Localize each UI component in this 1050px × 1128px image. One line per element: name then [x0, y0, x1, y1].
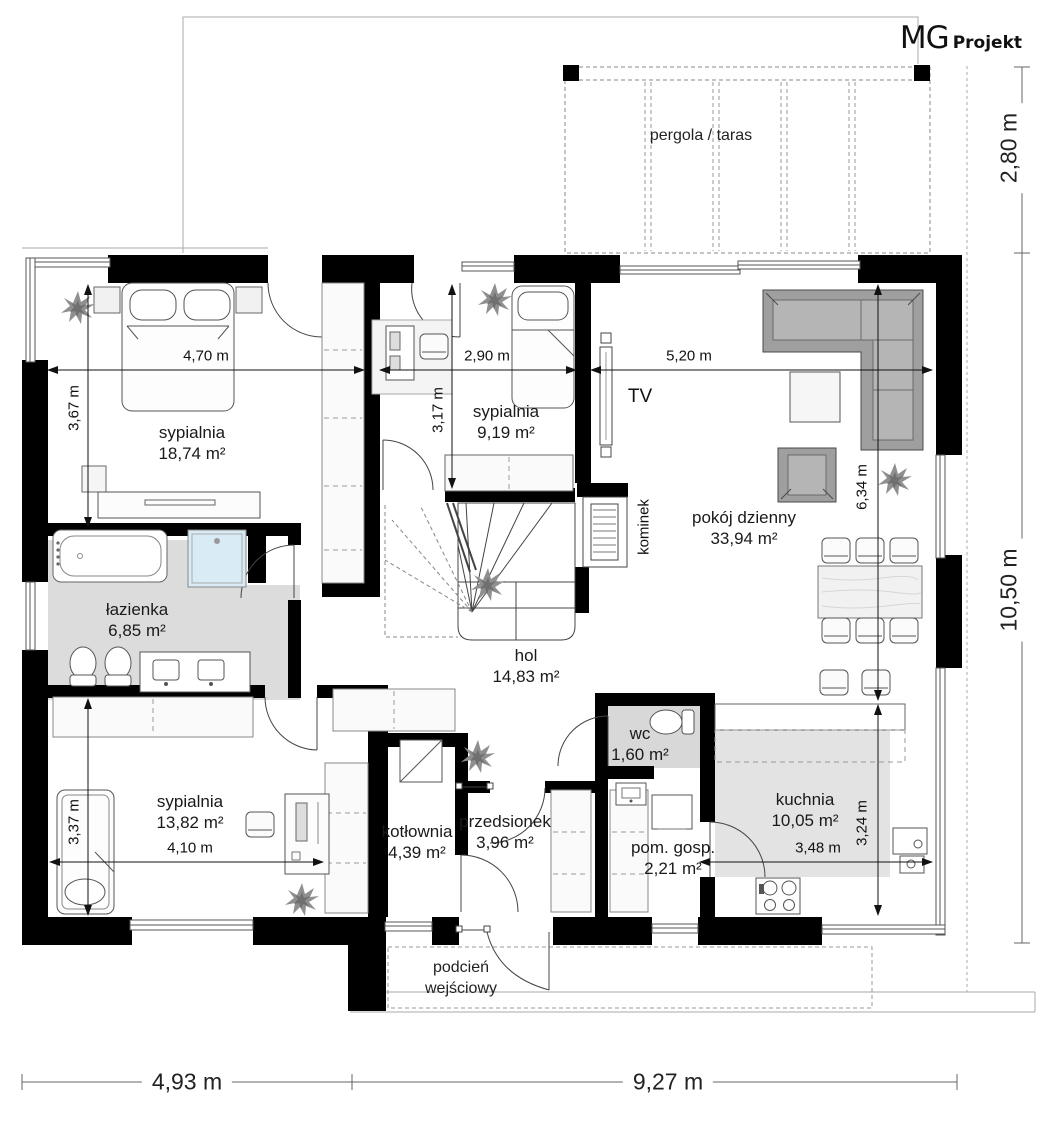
boiler-room-furniture [400, 740, 442, 782]
logo-projekt: Projekt [953, 33, 1022, 53]
room-label-hall: hol 14,83 m² [492, 645, 559, 688]
pergola-post [563, 65, 579, 81]
room-label-bedroom2: sypialnia 9,19 m² [473, 401, 539, 444]
bedroom2-furniture [372, 283, 574, 491]
room-label-bathroom: łazienka 6,85 m² [106, 599, 168, 642]
room-label-bedroom1: sypialnia 18,74 m² [158, 422, 225, 465]
dim-living-width: 5,20 m [666, 348, 712, 365]
dim-pergola-depth: 2,80 m [996, 103, 1023, 193]
dim-house-width-right: 9,27 m [623, 1069, 713, 1096]
dim-living-height: 6,34 m [854, 464, 871, 510]
dim-kitchen-width: 3,48 m [795, 840, 841, 857]
room-label-living-room: pokój dzienny 33,94 m² [692, 507, 796, 550]
shower [188, 530, 246, 587]
entrance-recess-label: podcień wejściowy [425, 958, 497, 1000]
stool [820, 670, 848, 695]
window-boiler-bottom [385, 922, 432, 931]
tv-unit [600, 333, 612, 457]
stool [862, 670, 890, 695]
kominek-label: kominek [636, 499, 653, 555]
door-bedroom2-hall [383, 440, 433, 490]
door-boiler-room [461, 855, 518, 912]
sliding-door-living [620, 261, 860, 274]
nightstand [236, 287, 262, 313]
dim-kitchen-height: 3,24 m [854, 800, 871, 846]
floor-plan: MG Projekt pergola / taras sypialnia 18,… [0, 0, 1050, 1128]
pergola-label: pergola / taras [650, 127, 752, 145]
plant [878, 463, 912, 496]
dim-bedroom3-height: 3,37 m [66, 799, 83, 845]
window-bedroom2-top [462, 262, 514, 271]
window-utility-bottom [652, 924, 698, 933]
tv-label: TV [628, 386, 652, 408]
dim-bedroom3-width: 4,10 m [167, 840, 213, 857]
dresser [98, 492, 260, 518]
room-label-bedroom3: sypialnia 13,82 m² [156, 791, 223, 834]
window-bathroom-left [26, 582, 35, 650]
pergola-taras [563, 65, 930, 253]
counter [715, 704, 905, 730]
room-label-utility: pom. gosp. 2,21 m² [631, 837, 715, 880]
dim-bedroom2-width: 2,90 m [464, 348, 510, 365]
mg-projekt-logo: MG Projekt [900, 20, 1022, 56]
living-room-furniture [763, 290, 923, 695]
bidet [105, 647, 131, 686]
window-living-right [936, 455, 945, 558]
washbasin [616, 783, 646, 805]
water-heater [652, 795, 692, 829]
wardrobe [53, 697, 253, 737]
dim-bedroom1-width: 4,70 m [183, 348, 229, 365]
sink-unit [893, 828, 927, 873]
dim-house-depth: 10,50 m [996, 538, 1023, 641]
window-bedroom3-bottom [130, 920, 253, 930]
wardrobe [325, 763, 368, 913]
chair [420, 334, 448, 359]
dining-set [818, 538, 922, 643]
plant [478, 283, 512, 316]
bathtub [53, 530, 167, 582]
nightstand [94, 287, 120, 313]
room-label-kitchen: kuchnia 10,05 m² [771, 789, 838, 832]
single-bed [512, 286, 574, 408]
room-label-vestibule: przedsionek 3,96 m² [459, 811, 551, 854]
floor-plan-drawing [0, 0, 1050, 1128]
stairs [385, 503, 575, 640]
cabinet [82, 466, 106, 492]
chair [246, 812, 274, 837]
door-bedroom1 [268, 283, 322, 337]
room-label-boiler-room: kotłownia 4,39 m² [382, 821, 453, 864]
armchair [778, 448, 836, 502]
pergola-post [914, 65, 930, 81]
coffee-table [790, 372, 840, 422]
plant [285, 883, 319, 916]
dim-bedroom1-height: 3,67 m [66, 385, 83, 431]
dim-bedroom2-height: 3,17 m [430, 387, 447, 433]
room-label-wc: wc 1,60 m² [611, 723, 669, 766]
toilet [70, 647, 96, 686]
logo-mg: MG [900, 20, 949, 56]
dim-house-width-left: 4,93 m [142, 1069, 232, 1096]
dresser [445, 455, 573, 491]
vanity-sinks [140, 652, 250, 692]
fireplace-kominek [583, 497, 627, 567]
cooktop [756, 878, 800, 914]
plant [61, 291, 95, 324]
door-bedroom3 [265, 697, 317, 750]
wardrobe [322, 283, 364, 583]
